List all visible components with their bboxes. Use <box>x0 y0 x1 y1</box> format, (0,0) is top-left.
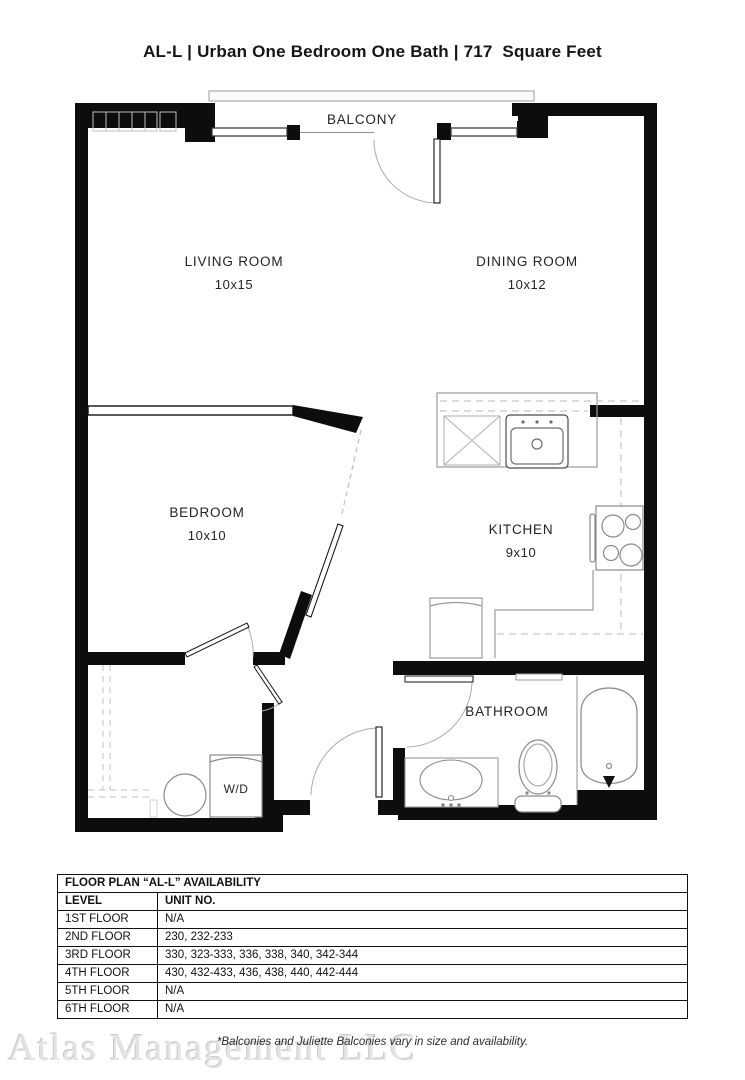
washer-dryer-label: W/D <box>224 782 249 796</box>
table-row: 1ST FLOORN/A <box>58 911 688 929</box>
dining-room-dims: 10x12 <box>508 277 546 292</box>
bedroom-label: BEDROOM <box>169 505 244 520</box>
bathroom-door <box>405 676 473 747</box>
level-cell: 6TH FLOOR <box>58 1001 158 1019</box>
kitchen-dims: 9x10 <box>506 545 537 560</box>
units-cell: N/A <box>158 1001 688 1019</box>
vanity-icon <box>405 758 498 807</box>
level-cell: 5TH FLOOR <box>58 983 158 1001</box>
fridge-icon <box>430 598 482 658</box>
floor-plan-page: AL-L | Urban One Bedroom One Bath | 717 … <box>0 0 745 1080</box>
living-room-label: LIVING ROOM <box>185 254 284 269</box>
level-column-header: LEVEL <box>58 893 158 911</box>
unit-column-header: UNIT NO. <box>158 893 688 911</box>
units-cell: N/A <box>158 983 688 1001</box>
level-cell: 3RD FLOOR <box>58 947 158 965</box>
watermark: Atlas Management LLC <box>8 1026 417 1070</box>
balcony-rail <box>209 91 534 101</box>
entry-door <box>311 727 382 797</box>
closet-shelf <box>150 800 157 817</box>
bedroom-dims: 10x10 <box>188 528 226 543</box>
window-right-icon <box>451 128 517 136</box>
balcony-label: BALCONY <box>327 112 397 127</box>
bedroom-door <box>185 623 253 657</box>
table-row: 5TH FLOORN/A <box>58 983 688 1001</box>
table-row: 2ND FLOOR230, 232-233 <box>58 929 688 947</box>
table-title: FLOOR PLAN “AL-L” AVAILABILITY <box>58 875 688 893</box>
table-header-row: LEVEL UNIT NO. <box>58 893 688 911</box>
living-room-dims: 10x15 <box>215 277 253 292</box>
kitchen-label: KITCHEN <box>489 522 554 537</box>
bath-shelf <box>516 674 562 680</box>
availability-rows: FLOOR PLAN “AL-L” AVAILABILITY LEVEL UNI… <box>58 875 688 1019</box>
units-cell: 430, 432-433, 436, 438, 440, 442-444 <box>158 965 688 983</box>
bathroom-label: BATHROOM <box>465 704 548 719</box>
floor-plan-drawing: BALCONY LIVING ROOM 10x15 DINING ROOM 10… <box>0 0 745 870</box>
availability-table: FLOOR PLAN “AL-L” AVAILABILITY LEVEL UNI… <box>57 874 688 1019</box>
closet-rod-dashes <box>88 665 152 797</box>
water-heater-icon <box>164 774 206 816</box>
table-title-row: FLOOR PLAN “AL-L” AVAILABILITY <box>58 875 688 893</box>
dining-room-label: DINING ROOM <box>476 254 578 269</box>
bathtub-icon <box>581 688 637 788</box>
table-row: 4TH FLOOR430, 432-433, 436, 438, 440, 44… <box>58 965 688 983</box>
toilet-icon <box>515 740 561 812</box>
kitchen-sink-icon <box>506 415 568 468</box>
stove-icon <box>590 506 643 570</box>
table-row: 3RD FLOOR330, 323-333, 336, 338, 340, 34… <box>58 947 688 965</box>
units-cell: 230, 232-233 <box>158 929 688 947</box>
level-cell: 1ST FLOOR <box>58 911 158 929</box>
table-row: 6TH FLOORN/A <box>58 1001 688 1019</box>
balcony-door <box>374 139 440 203</box>
level-cell: 2ND FLOOR <box>58 929 158 947</box>
sliding-door-panel <box>306 524 343 617</box>
level-cell: 4TH FLOOR <box>58 965 158 983</box>
dishwasher-icon <box>444 416 500 465</box>
window-left-icon <box>212 128 287 136</box>
units-cell: N/A <box>158 911 688 929</box>
units-cell: 330, 323-333, 336, 338, 340, 342-344 <box>158 947 688 965</box>
footnote: *Balconies and Juliette Balconies vary i… <box>0 1036 745 1048</box>
